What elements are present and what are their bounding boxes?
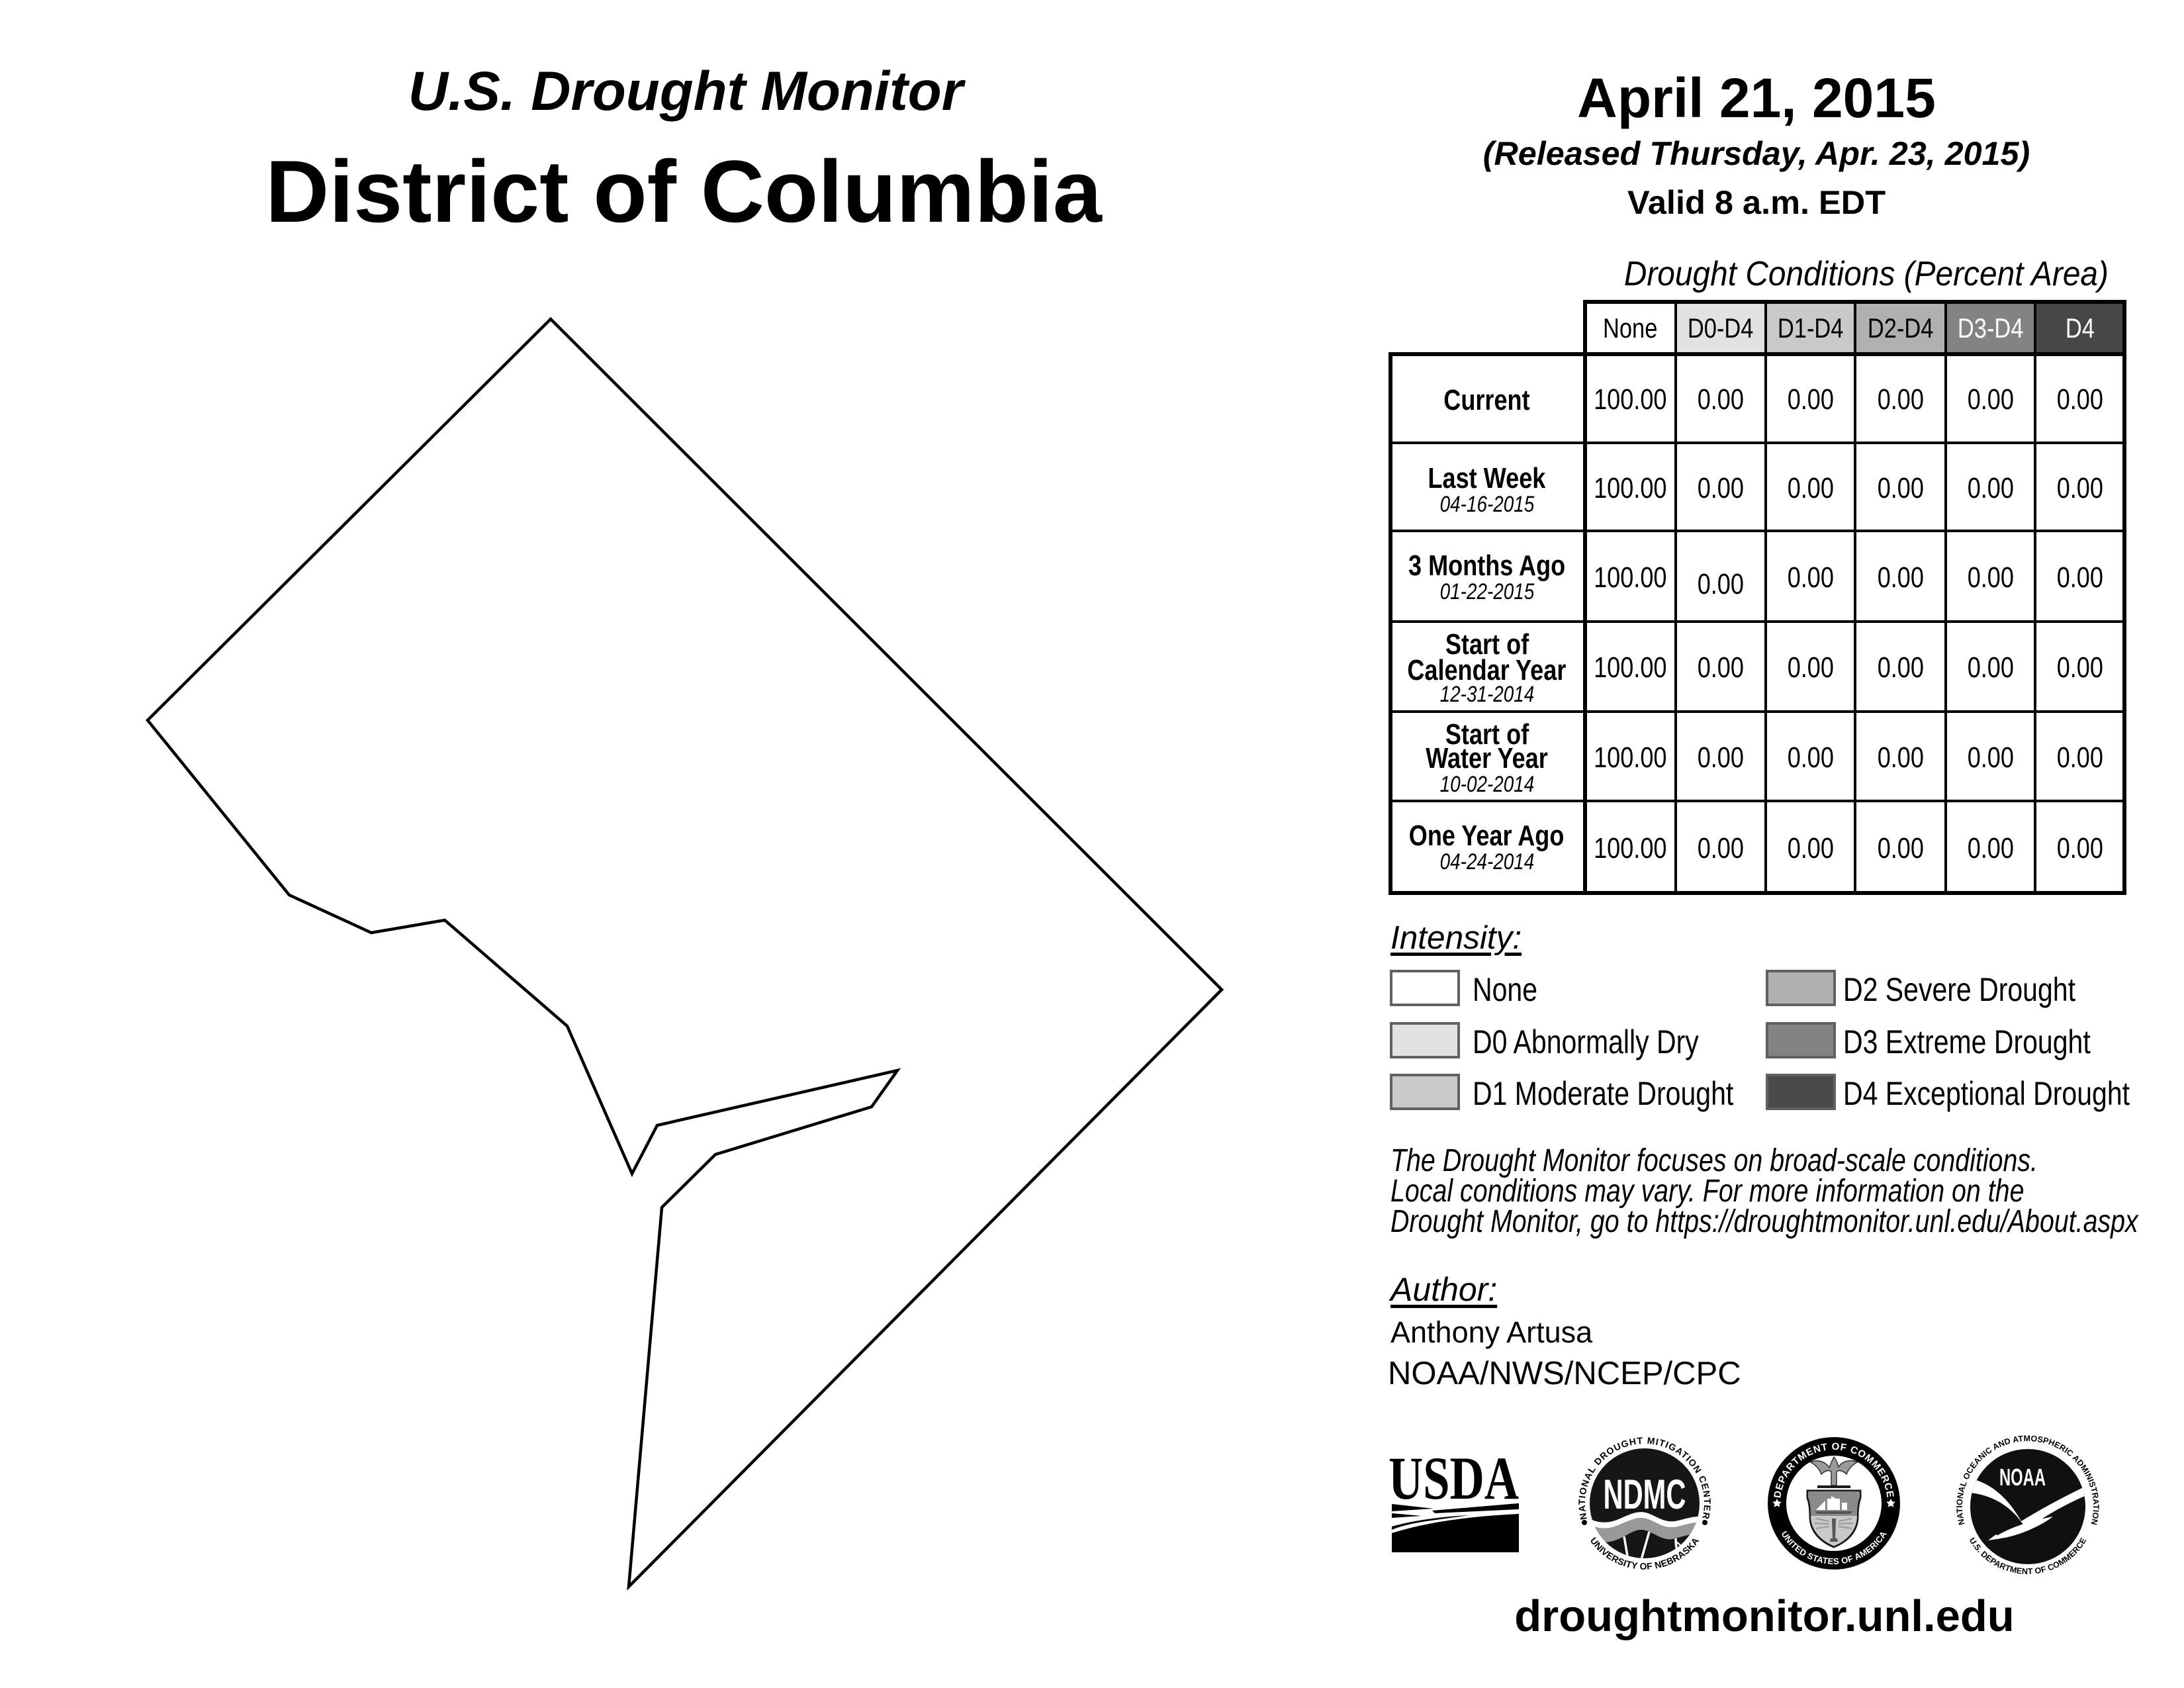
svg-text:NDMC: NDMC [1604,1472,1686,1518]
svg-text:NOAA: NOAA [1999,1464,2046,1491]
svg-text:USDA: USDA [1388,1444,1519,1512]
